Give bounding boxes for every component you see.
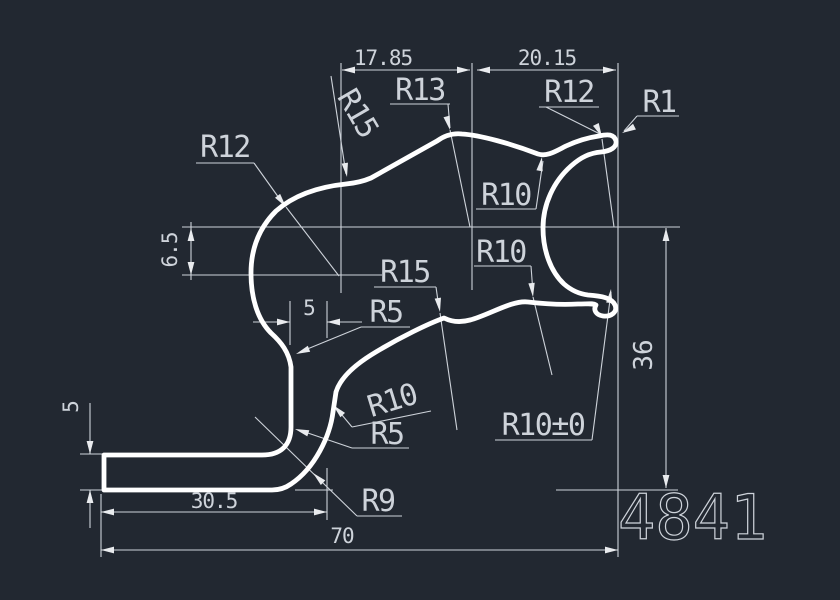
radius-label-r12-left: R12	[200, 130, 250, 165]
cad-drawing: 17.85 20.15 6.5 36 5 5 30.5 70 R13 R15 R…	[0, 0, 840, 600]
radius-label-r12-right: R12	[544, 75, 594, 110]
dim-leg-length: 30.5	[191, 489, 238, 513]
radius-label-r9: R9	[361, 484, 395, 519]
radius-label-r10-tolerance: R10±0	[502, 408, 585, 443]
radius-label-r1: R1	[642, 85, 676, 120]
radius-label-r13: R13	[395, 73, 445, 108]
dim-top-right-width: 20.15	[518, 46, 576, 70]
dim-wall-thickness: 5	[303, 296, 315, 320]
radius-label-r5-lower: R5	[370, 417, 403, 452]
dim-upper-offset: 6.5	[158, 233, 182, 268]
dim-overall-height: 36	[629, 339, 659, 370]
dim-leg-thickness: 5	[59, 401, 83, 413]
part-number: 4841	[618, 481, 767, 554]
dim-overall-width: 70	[330, 524, 354, 548]
radius-label-r15-mid: R15	[380, 255, 430, 290]
cad-drawing-window: 17.85 20.15 6.5 36 5 5 30.5 70 R13 R15 R…	[0, 0, 840, 600]
radius-label-r5-upper: R5	[369, 295, 402, 330]
radius-label-r10-lower: R10	[476, 235, 526, 270]
dim-top-left-width: 17.85	[354, 46, 412, 70]
radius-label-r10-upper: R10	[481, 178, 531, 213]
